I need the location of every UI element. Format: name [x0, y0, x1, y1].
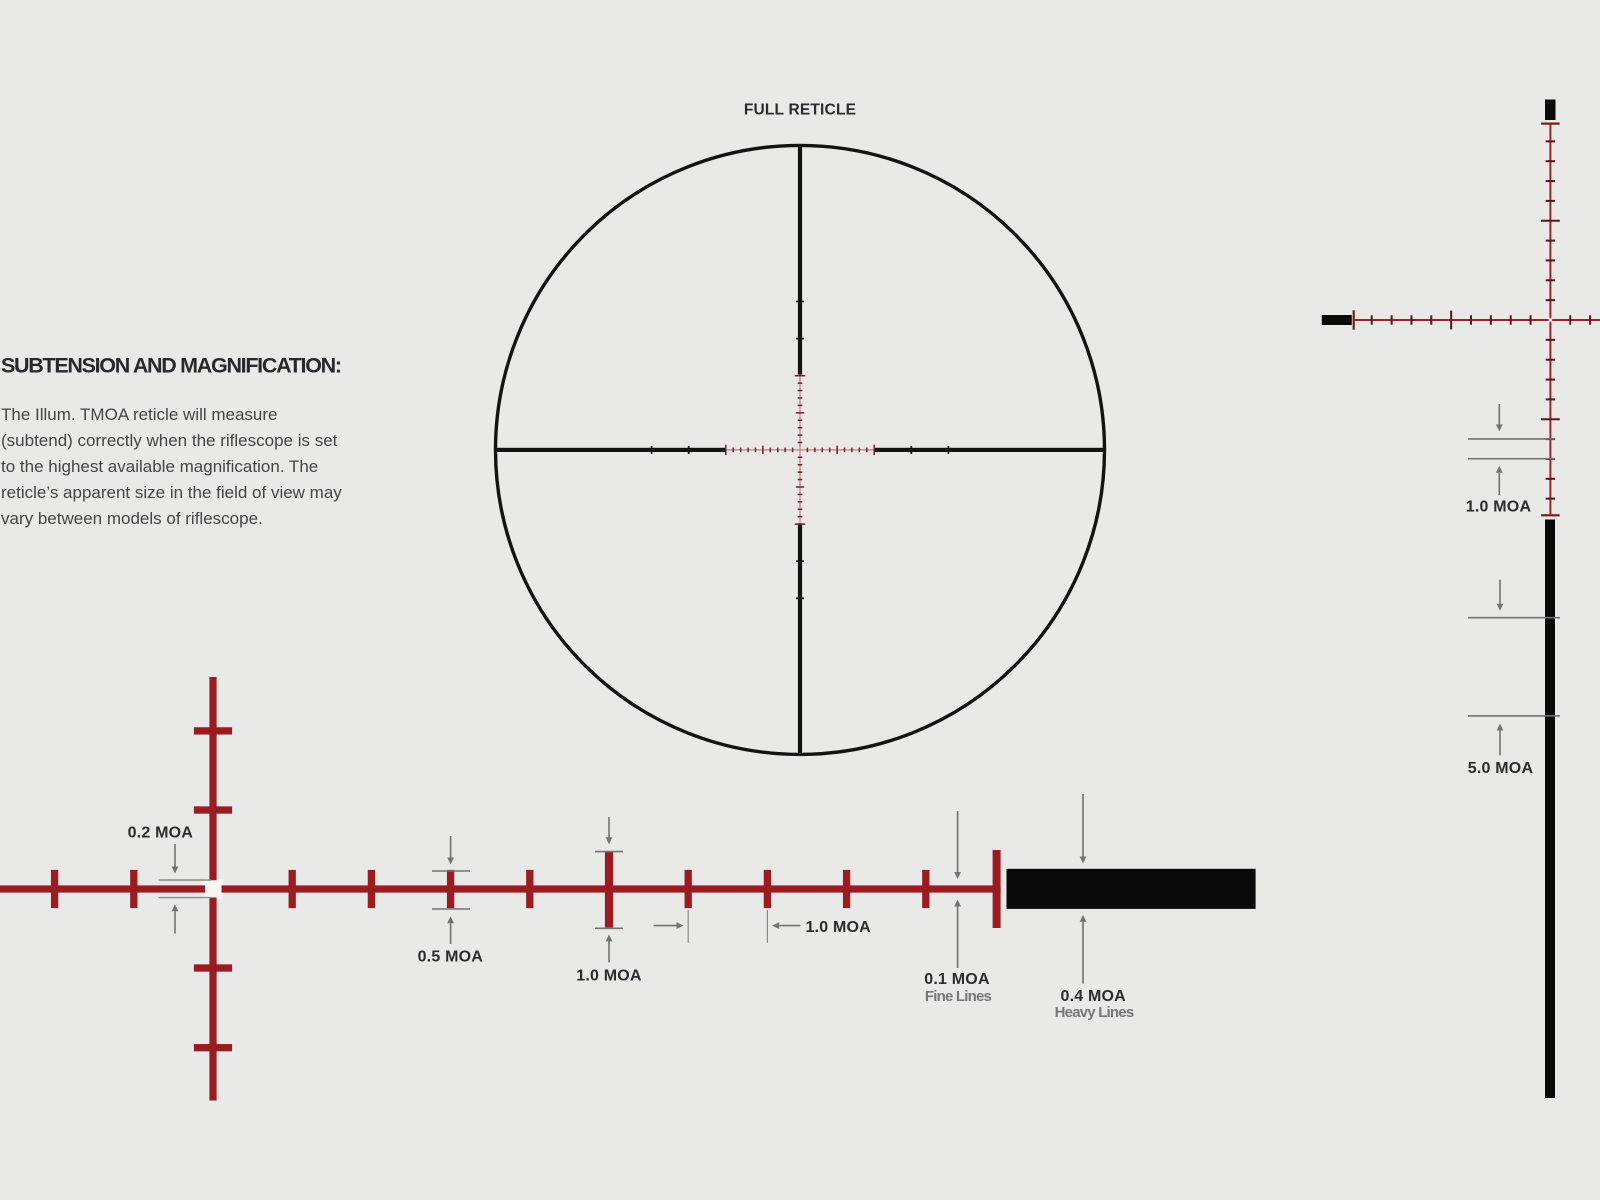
svg-text:0.5 MOA: 0.5 MOA: [418, 948, 484, 965]
svg-text:1.0 MOA: 1.0 MOA: [576, 968, 642, 985]
svg-text:5.0 MOA: 5.0 MOA: [1468, 760, 1534, 777]
svg-text:0.2 MOA: 0.2 MOA: [128, 825, 194, 842]
svg-text:1.0 MOA: 1.0 MOA: [806, 919, 872, 936]
svg-text:(subtend) correctly when the r: (subtend) correctly when the riflescope …: [1, 431, 338, 450]
svg-text:1.0 MOA: 1.0 MOA: [1466, 498, 1532, 515]
svg-text:Fine Lines: Fine Lines: [925, 988, 992, 1005]
svg-text:to the highest available magni: to the highest available magnification. …: [1, 457, 318, 476]
svg-text:0.1 MOA: 0.1 MOA: [924, 971, 990, 988]
svg-text:FULL RETICLE: FULL RETICLE: [744, 102, 856, 119]
svg-text:SUBTENSION AND MAGNIFICATION:: SUBTENSION AND MAGNIFICATION:: [1, 354, 341, 378]
svg-text:Heavy Lines: Heavy Lines: [1055, 1004, 1134, 1021]
svg-text:vary between models of riflesc: vary between models of riflescope.: [1, 509, 263, 528]
svg-text:reticle’s apparent size in the: reticle’s apparent size in the field of …: [1, 483, 342, 502]
svg-text:The Illum. TMOA reticle will m: The Illum. TMOA reticle will measure: [1, 405, 277, 424]
svg-text:0.4 MOA: 0.4 MOA: [1060, 988, 1126, 1005]
